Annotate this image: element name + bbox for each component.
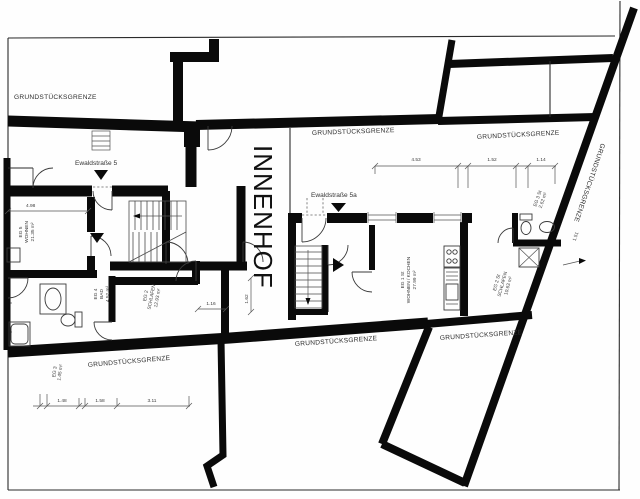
- dim-bottom-2: 1.58: [95, 398, 105, 404]
- street-label-ewaldstrasse-5a: Ewaldstraße 5a: [311, 192, 357, 199]
- room-label-eg5: EG 5 WOHNEN 21.35 m²: [18, 221, 36, 243]
- room-label-eg4: EG 4 BAD 4.52 m²: [93, 285, 111, 302]
- dim-top-3: 1.14: [536, 157, 546, 163]
- floor-plan-page: 4.53 1.52 1.14 1.48 1.58 3.11 4.98 1.16 …: [0, 0, 640, 499]
- dim-mid-2: 1.62: [244, 294, 250, 304]
- room-label-eg3: EG 3 1.45 m²: [51, 363, 65, 381]
- svg-text:WOHNEN: WOHNEN: [24, 221, 30, 243]
- boundary-label-n1: GRUNDSTÜCKSGRENZE: [312, 126, 395, 137]
- stairs-building-5: [129, 201, 186, 262]
- dim-diagonal: 1.51: [572, 231, 581, 242]
- svg-text:WOHNEN / KOCHEN: WOHNEN / KOCHEN: [406, 256, 412, 303]
- bathroom-fixtures-5: [7, 248, 82, 346]
- street-label-ewaldstrasse-5: Ewaldstraße 5: [75, 160, 117, 167]
- dim-bottom-1: 1.48: [57, 398, 67, 404]
- svg-text:EG 4: EG 4: [93, 288, 99, 299]
- boundary-divider-south: [207, 340, 223, 487]
- dim-top-1: 4.53: [411, 157, 421, 163]
- kitchen-fixtures: [444, 246, 460, 310]
- dim-left-width: 4.98: [26, 203, 36, 209]
- entrance-steps-5: [92, 131, 110, 150]
- entrance-arrow-5a: [331, 203, 346, 212]
- boundary-label-nw: GRUNDSTÜCKSGRENZE: [14, 93, 97, 101]
- innenhof-label: INNENHOF: [248, 145, 278, 289]
- boundary-label-east-diagonal: GRUNDSTÜCKSGRENZE: [572, 142, 607, 223]
- svg-text:21.35 m²: 21.35 m²: [30, 222, 36, 241]
- dim-top-2: 1.52: [487, 157, 497, 163]
- svg-text:EG 5: EG 5: [18, 226, 24, 237]
- svg-text:27.99 m²: 27.99 m²: [412, 270, 418, 289]
- entrance-arrow-5a-inner: [333, 258, 344, 272]
- boundary-label-n2: GRUNDSTÜCKSGRENZE: [477, 129, 560, 141]
- room-label-eg3st: EG 3 St 2.62 m²: [532, 189, 549, 209]
- room-label-eg2: EG 2 SCHLAFEN 12.93 m²: [141, 282, 164, 311]
- svg-text:1.45 m²: 1.45 m²: [56, 364, 64, 381]
- boundary-wall-northwest: [8, 121, 200, 127]
- entrance-arrow-5-inner: [90, 233, 104, 243]
- entrance-arrow-5: [94, 170, 108, 180]
- room-label-eg2st: EG 2 St SCHLAFEN 10.63 m²: [491, 269, 515, 299]
- courtyard-wall-top: [426, 315, 532, 324]
- room-label-eg1st: EG 1 St WOHNEN / KOCHEN 27.99 m²: [400, 256, 418, 303]
- boundary-label-sw: GRUNDSTÜCKSGRENZE: [87, 354, 170, 369]
- svg-text:BAD: BAD: [99, 289, 105, 299]
- floor-plan-drawing: 4.53 1.52 1.14 1.48 1.58 3.11 4.98 1.16 …: [0, 0, 640, 499]
- stairs-building-5a: [295, 246, 322, 308]
- courtyard-wall-bottom: [382, 444, 465, 483]
- svg-text:EG 1 St: EG 1 St: [400, 271, 406, 288]
- dim-bottom-3: 3.11: [148, 398, 157, 404]
- dim-mid-1: 1.16: [206, 301, 216, 307]
- courtyard-wall-left: [382, 327, 429, 444]
- section-arrow: [563, 261, 580, 265]
- building-walls: [7, 39, 613, 350]
- boundary-label-courtyard: GRUNDSTÜCKSGRENZE: [440, 328, 523, 342]
- boundary-diagonal-east: [464, 8, 634, 486]
- property-boundary-walls: [8, 8, 634, 487]
- svg-text:4.52 m²: 4.52 m²: [105, 285, 111, 302]
